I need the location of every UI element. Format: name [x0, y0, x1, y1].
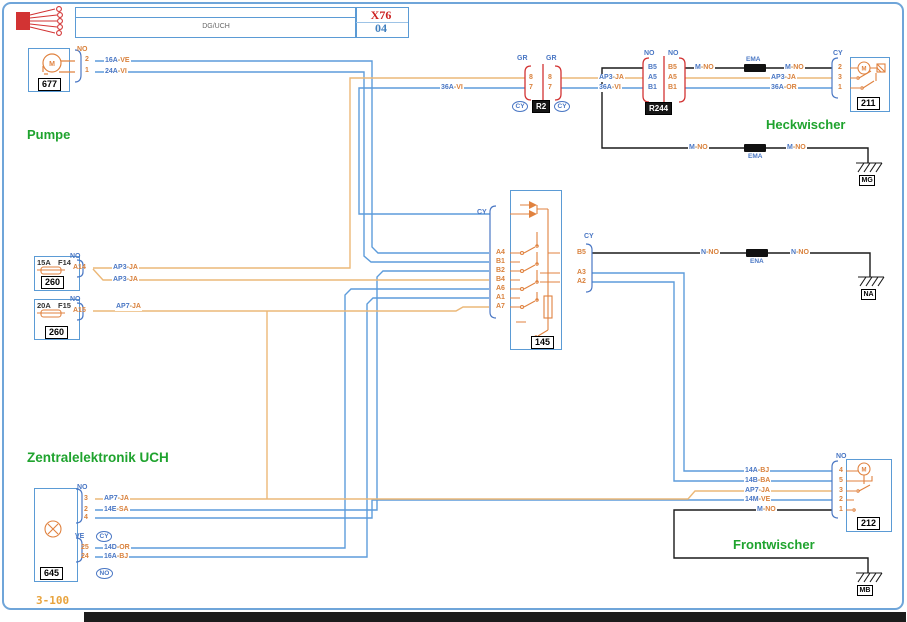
wire-label-14a-bj: 14ABJ [744, 467, 770, 475]
pump-pin-2: 2 [85, 56, 89, 64]
pump-connector-label: NO [77, 46, 88, 54]
wire-label-36a-vi-b: 36AVI [598, 84, 622, 92]
ground-mg-label: MG [859, 175, 875, 186]
wire-label-36a-vi: 36AVI [440, 84, 464, 92]
rear-wiper-pin-3: 3 [838, 74, 842, 82]
relay-connector-left-label: CY [477, 209, 487, 217]
uch-pin-2: 2 [84, 506, 88, 514]
r2-connector-right-label: GR [546, 55, 557, 63]
page-number: 04 [356, 21, 406, 36]
uch-face-no: NO [96, 568, 113, 579]
wire-label-14m-ve: 14MVE [744, 496, 771, 504]
uch-face-cy: CY [96, 531, 112, 542]
splice-ema-ground-label: EMA [748, 153, 762, 160]
ground-na-label: NA [861, 289, 876, 300]
pump-pin-1: 1 [85, 67, 89, 75]
uch-number: 645 [40, 567, 63, 580]
wire-label-ap3-b: AP3JA [112, 276, 139, 284]
wire-label-36a-or: 36AOR [770, 84, 798, 92]
wire-label-14d-or: 14DOR [103, 544, 131, 552]
r244-left-pin-b1: B1 [648, 84, 657, 92]
relay-number: 145 [531, 336, 554, 349]
wire-label-16a-ve: 16AVE [104, 57, 131, 65]
r244-right-pin-b5: B5 [668, 64, 677, 72]
splice-ena-label: ENA [750, 258, 764, 265]
wire-label-mno-b: MNO [784, 64, 805, 72]
wire-label-ap3-c: AP3JA [598, 74, 625, 82]
r2-left-pin-8: 8 [529, 74, 533, 82]
relay-pin-a2: A2 [577, 278, 586, 286]
rear-wiper-pin-1: 1 [838, 84, 842, 92]
r244-connector-right-label: NO [668, 50, 679, 58]
pump-number: 677 [38, 78, 61, 91]
f15-connector-label: NO [70, 296, 81, 304]
rear-wiper-number: 211 [857, 97, 880, 110]
header-title-top-row [76, 8, 356, 18]
wire-label-14e-sa: 14ESA [103, 506, 130, 514]
rear-wiper-caption: Heckwischer [766, 118, 846, 132]
r244-right-pin-a5: A5 [668, 74, 677, 82]
wire-label-ap7-uch: AP7JA [103, 495, 130, 503]
uch-pin-3: 3 [84, 495, 88, 503]
splice-ema-top-label: EMA [746, 56, 760, 63]
header-unit-label: DG/UCH [76, 18, 356, 35]
front-wiper-pin-4: 4 [839, 467, 843, 475]
r2-right-pin-8: 8 [548, 74, 552, 82]
uch-pin-24: 24 [81, 553, 89, 561]
front-wiper-connector-label: NO [836, 453, 847, 461]
page-reference: 3-100 [36, 594, 69, 607]
f15-name: F15 [58, 301, 71, 310]
relay-pin-b1: B1 [496, 258, 505, 266]
relay-pin-a1: A1 [496, 294, 505, 302]
rear-wiper-pin-2: 2 [838, 64, 842, 72]
wire-label-ap3-a: AP3JA [112, 264, 139, 272]
front-wiper-number: 212 [857, 517, 880, 530]
r2-face-left: CY [512, 101, 528, 112]
r244-label: R244 [645, 102, 672, 115]
f15-pin-a15: A15 [73, 307, 86, 315]
relay-pin-b5: B5 [577, 249, 586, 257]
wire-label-16a-bj: 16ABJ [103, 553, 129, 561]
f14-rating: 15A [37, 258, 51, 267]
pump-caption: Pumpe [27, 128, 70, 142]
wire-label-nno-b: NNO [790, 249, 810, 257]
wire-label-mno-c: MNO [688, 144, 709, 152]
relay-pin-a4: A4 [496, 249, 505, 257]
bottom-bar [84, 612, 906, 622]
front-wiper-caption: Frontwischer [733, 538, 815, 552]
f14-pin-a14: A14 [73, 264, 86, 272]
r2-label: R2 [532, 100, 550, 113]
uch-bottom-connector-label: VE [75, 533, 84, 541]
relay-pin-a3: A3 [577, 269, 586, 277]
wire-label-mno-d: MNO [786, 144, 807, 152]
wire-label-ap7-212: AP7JA [744, 487, 771, 495]
rear-wiper-connector-label: CY [833, 50, 843, 58]
f14-name: F14 [58, 258, 71, 267]
r244-right-pin-b1: B1 [668, 84, 677, 92]
wire-label-mno-212: MNO [756, 506, 777, 514]
r244-left-pin-b5: B5 [648, 64, 657, 72]
front-wiper-pin-3: 3 [839, 487, 843, 495]
r2-face-right: CY [554, 101, 570, 112]
r244-connector-left-label: NO [644, 50, 655, 58]
header-title-box: DG/UCH [75, 7, 357, 38]
uch-top-connector-label: NO [77, 484, 88, 492]
relay-pin-a6: A6 [496, 285, 505, 293]
wire-label-24a-vi: 24AVI [104, 68, 128, 76]
uch-pin-25: 25 [81, 544, 89, 552]
uch-caption: Zentralelektronik UCH [27, 451, 169, 465]
r2-connector-left-label: GR [517, 55, 528, 63]
relay-connector-right-label: CY [584, 233, 594, 241]
f15-rating: 20A [37, 301, 51, 310]
relay-pin-b2: B2 [496, 267, 505, 275]
wire-label-nno-a: NNO [700, 249, 720, 257]
front-wiper-pin-2: 2 [839, 496, 843, 504]
wire-label-ap7-f15: AP7JA [115, 303, 142, 311]
wire-label-ap3-d: AP3JA [770, 74, 797, 82]
relay-pin-b4: B4 [496, 276, 505, 284]
f14-connector-label: NO [70, 253, 81, 261]
wire-label-mno-a: MNO [694, 64, 715, 72]
f15-number: 260 [45, 326, 68, 339]
wiring-diagram-page: DG/UCH [0, 0, 907, 622]
front-wiper-pin-5: 5 [839, 477, 843, 485]
uch-pin-4: 4 [84, 514, 88, 522]
r2-left-pin-7: 7 [529, 84, 533, 92]
relay-pin-a7: A7 [496, 303, 505, 311]
wiper-relay-plate-box [510, 190, 562, 350]
ground-mb-label: MB [857, 585, 873, 596]
r244-left-pin-a5: A5 [648, 74, 657, 82]
wire-label-14b-ba: 14BBA [744, 477, 771, 485]
front-wiper-pin-1: 1 [839, 506, 843, 514]
f14-number: 260 [41, 276, 64, 289]
r2-right-pin-7: 7 [548, 84, 552, 92]
